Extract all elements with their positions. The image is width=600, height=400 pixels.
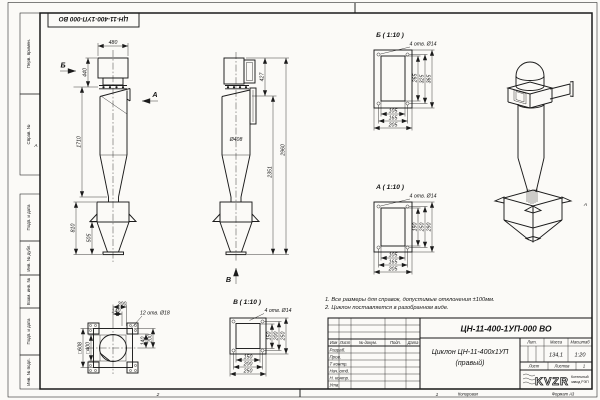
sheet-frame: А А 2 1 Копировал Формат А3 (8, 3, 597, 399)
company-logo: KVZR Котельный завод РЭП (523, 374, 589, 388)
dim-label: 2351 (268, 166, 274, 179)
dim-label: 200 (243, 362, 253, 368)
zone-letter-right: А (583, 202, 587, 208)
isometric-view (495, 62, 573, 243)
detail-b-holes-label: 4 отв. Ø14 (410, 42, 437, 48)
hdr-lit: Лит. (526, 340, 537, 345)
engineering-drawing: А А 2 1 Копировал Формат А3 Перв. примен… (0, 0, 600, 400)
margin-label-inv-dubl: Инв. № дубл. (26, 244, 31, 271)
dim-label: 140 (141, 337, 147, 346)
dim-label: □400 (86, 342, 92, 354)
part-name-line1: Циклон ЦН-11-400х1УП (432, 349, 510, 356)
detail-view-b: Б ( 1:10 ) 4 отв. Ø14 265 325 365 105 16… (374, 32, 437, 131)
dim-label: 2960 (281, 144, 287, 157)
margin-label-sprav-no: Справ. № (26, 124, 31, 144)
dim-label: 480 (109, 40, 118, 46)
row-label-prov: Пров. (330, 355, 342, 360)
view-arrow-b-label: Б (60, 61, 65, 70)
dim-label: 250 (420, 223, 426, 233)
dim-label: 427 (260, 72, 266, 82)
dim-label: 190 (413, 223, 419, 232)
masshtab-value: 1:20 (575, 353, 587, 359)
row-label-utv: Утв. (330, 383, 340, 388)
note-line-2: 2. Циклон поставляется в разобранном вид… (324, 305, 449, 311)
margin-label-vzam-inv: Взам. инв. № (26, 278, 31, 305)
front-view: 480 440 1710 810 505 Б А (60, 40, 158, 262)
dim-label: 505 (87, 234, 93, 243)
technical-notes: 1. Все размеры для справок, допустимые о… (324, 297, 495, 311)
detail-b-title: Б ( 1:10 ) (376, 32, 404, 39)
hdr-masshtab: Масштаб (570, 340, 590, 345)
row-label-tkontr: Т контр. (330, 362, 348, 367)
hdr-massa: Масса (550, 340, 563, 345)
dim-label: 205 (388, 123, 398, 129)
company-name-line2: завод РЭП (571, 380, 589, 384)
detail-view-v: В ( 1:10 ) 4 отв. Ø14 150 200 250 150 20… (230, 299, 292, 377)
bottom-zone-1: 1 (436, 392, 439, 398)
part-name-line2: (правый) (456, 359, 485, 367)
row-label-nachotd: Нач. отд. (330, 369, 350, 374)
dim-label: 200 (148, 334, 154, 344)
doc-number: ЦН-11-400-1УП-000 ВО (461, 324, 552, 334)
company-name-line1: Котельный (571, 375, 589, 379)
dim-label: 250 (243, 369, 253, 375)
margin-column: Перв. примен. Справ. № Подп. и дата Инв.… (20, 13, 40, 389)
detail-a-title: А ( 1:10 ) (375, 184, 404, 191)
dim-label: 105 (389, 109, 398, 115)
col-header-izm: Изм (330, 340, 338, 345)
dim-label: 105 (389, 253, 398, 259)
margin-label-perv-primen: Перв. примен. (26, 39, 31, 68)
dim-label: □608 (78, 342, 84, 354)
dim-label: 250 (281, 332, 287, 342)
logo-text: KVZR (535, 376, 569, 388)
col-header-list: Лист (339, 340, 351, 345)
view-arrow-v-label: В (226, 275, 231, 284)
side-view: Ø408 427 2351 2960 В (213, 52, 289, 284)
hdr-list: Лист (528, 364, 540, 369)
dim-label: 200 (274, 332, 280, 342)
dim-label: 440 (83, 68, 89, 77)
dim-label: 150 (267, 332, 273, 341)
footer-format-label: Формат А3 (552, 392, 575, 397)
dim-label: 290 (427, 223, 433, 233)
dim-label: 140 (112, 309, 121, 315)
corner-stamp-text: ЦН-11-400-1УП-000 ВО (59, 15, 128, 22)
col-header-data: Дата (407, 340, 420, 345)
dim-label-diameter: Ø408 (229, 137, 243, 143)
footer-copied-label: Копировал (458, 392, 479, 397)
dim-label: 265 (413, 74, 419, 84)
zone-letter-left: А (33, 143, 37, 149)
dim-label: 1710 (77, 136, 83, 148)
margin-label-podp-data-1: Подп. и дата (26, 204, 31, 230)
row-label-razrab: Разраб. (330, 348, 346, 353)
dim-label: 325 (420, 75, 426, 84)
view-arrow-a-label: А (151, 90, 157, 99)
hdr-listov: Листов (554, 364, 571, 369)
dim-label: 365 (427, 75, 433, 84)
drawing-sheet: А А 2 1 Копировал Формат А3 Перв. примен… (0, 0, 600, 400)
detail-view-a: А ( 1:10 ) 4 отв. Ø14 190 250 290 105 16… (374, 184, 437, 275)
plan-view: 200 140 12 отв. Ø18 140 200 □400 □608 (78, 302, 170, 375)
title-block: Изм Лист № докум. Подп. Дата Разраб. Про… (328, 318, 592, 389)
dim-label: 810 (71, 224, 77, 233)
col-header-dokum: № докум. (359, 340, 377, 345)
corner-stamp: ЦН-11-400-1УП-000 ВО (48, 13, 139, 27)
detail-a-holes-label: 4 отв. Ø14 (410, 194, 437, 200)
dim-label: 205 (388, 267, 398, 273)
logo-wave-icon (523, 374, 535, 376)
detail-v-title: В ( 1:10 ) (233, 299, 261, 306)
detail-v-holes-label: 4 отв. Ø14 (265, 308, 292, 314)
col-header-podp: Подп. (390, 340, 401, 345)
plan-holes-label: 12 отв. Ø18 (140, 311, 170, 317)
listov-value: 1 (583, 364, 585, 369)
margin-label-podp-data-2: Подп. и дата (26, 318, 31, 344)
dim-label: 165 (389, 116, 398, 122)
dim-label: 150 (244, 355, 253, 361)
note-line-1: 1. Все размеры для справок, допустимые о… (325, 297, 495, 303)
margin-label-inv-podl: Инв. № подл. (26, 358, 31, 385)
massa-value: 134,1 (549, 353, 563, 359)
bottom-zone-2: 2 (156, 392, 160, 398)
dim-label: 165 (389, 260, 398, 266)
row-label-nkontr: Н. контр. (330, 376, 350, 381)
dim-label: 200 (117, 302, 127, 308)
